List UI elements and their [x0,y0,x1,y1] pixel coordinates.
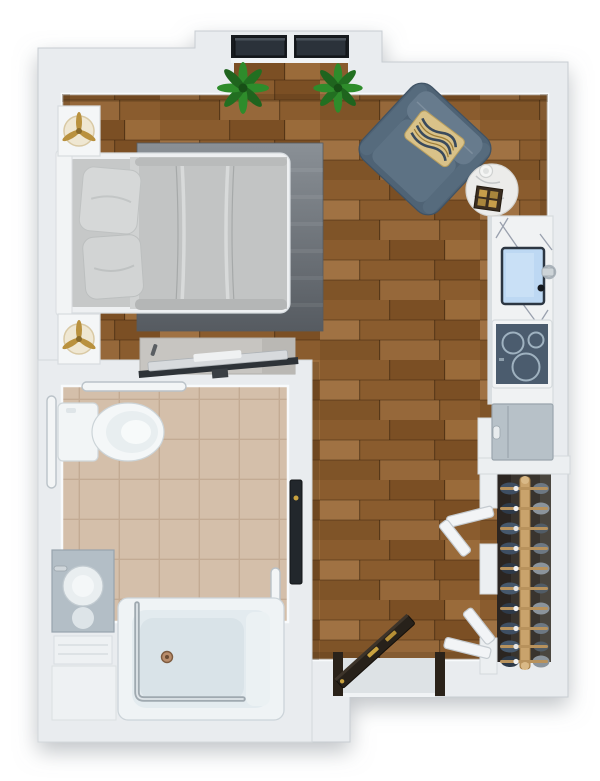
refrigerator [492,404,553,460]
vanity-faucet [54,566,67,571]
toilet [58,403,164,461]
vanity-towel-roll [72,607,94,629]
potted-plant-left [217,62,269,114]
grab-bar-left [47,396,56,488]
door-jamb-right [435,652,445,696]
tub-seat [246,612,270,706]
window-pane-right [296,38,346,56]
towel-shelf [54,636,112,664]
toilet-lid [121,420,151,444]
grab-bar-top [82,382,186,391]
window-glare-left [235,38,285,41]
side-table [466,164,518,216]
tv-stand [212,368,229,378]
window-bay [231,34,349,63]
shower-alcove [52,666,116,720]
bathroom [38,360,312,742]
duvet-top-hem [135,158,287,166]
cooktop [492,320,552,388]
pillow-top [78,166,141,235]
window-pane-left [235,38,285,56]
floor-plan-stage [0,0,600,781]
sink-highlight [506,253,534,297]
toilet-flush-button [66,408,76,413]
refrigerator-handle [493,426,500,439]
window-mullion [287,34,294,60]
coffee-cup-inner [483,168,489,174]
vanity-basin-inner [72,575,94,597]
tub-basin-deep [140,618,244,700]
headboard [56,150,72,316]
closet-rod-cap-top [521,476,529,484]
closet-wall-left-mid [480,544,497,594]
window-sill [231,58,349,63]
potted-plant-right [313,63,362,112]
entry-threshold-lip [343,693,435,697]
bathroom-door-handle [294,496,299,501]
closet-rod [520,477,530,669]
cooktop-controls [499,358,504,361]
duvet [133,157,287,309]
kitchenette [488,216,555,460]
floor-plan-canvas [0,0,600,781]
vanity [52,550,114,664]
pillow-bottom [82,234,144,300]
closet-wall-left-upper [480,474,497,508]
window-glare-right [296,38,346,41]
nightstand-top [58,106,100,156]
walk-in-bathtub [118,598,284,720]
closet-rod-cap-bottom [521,662,529,670]
bed [56,150,290,316]
serving-tray [474,186,503,211]
tub-drain-hole [165,655,169,659]
nightstand-bottom [58,314,100,364]
duvet-hem [135,299,287,310]
